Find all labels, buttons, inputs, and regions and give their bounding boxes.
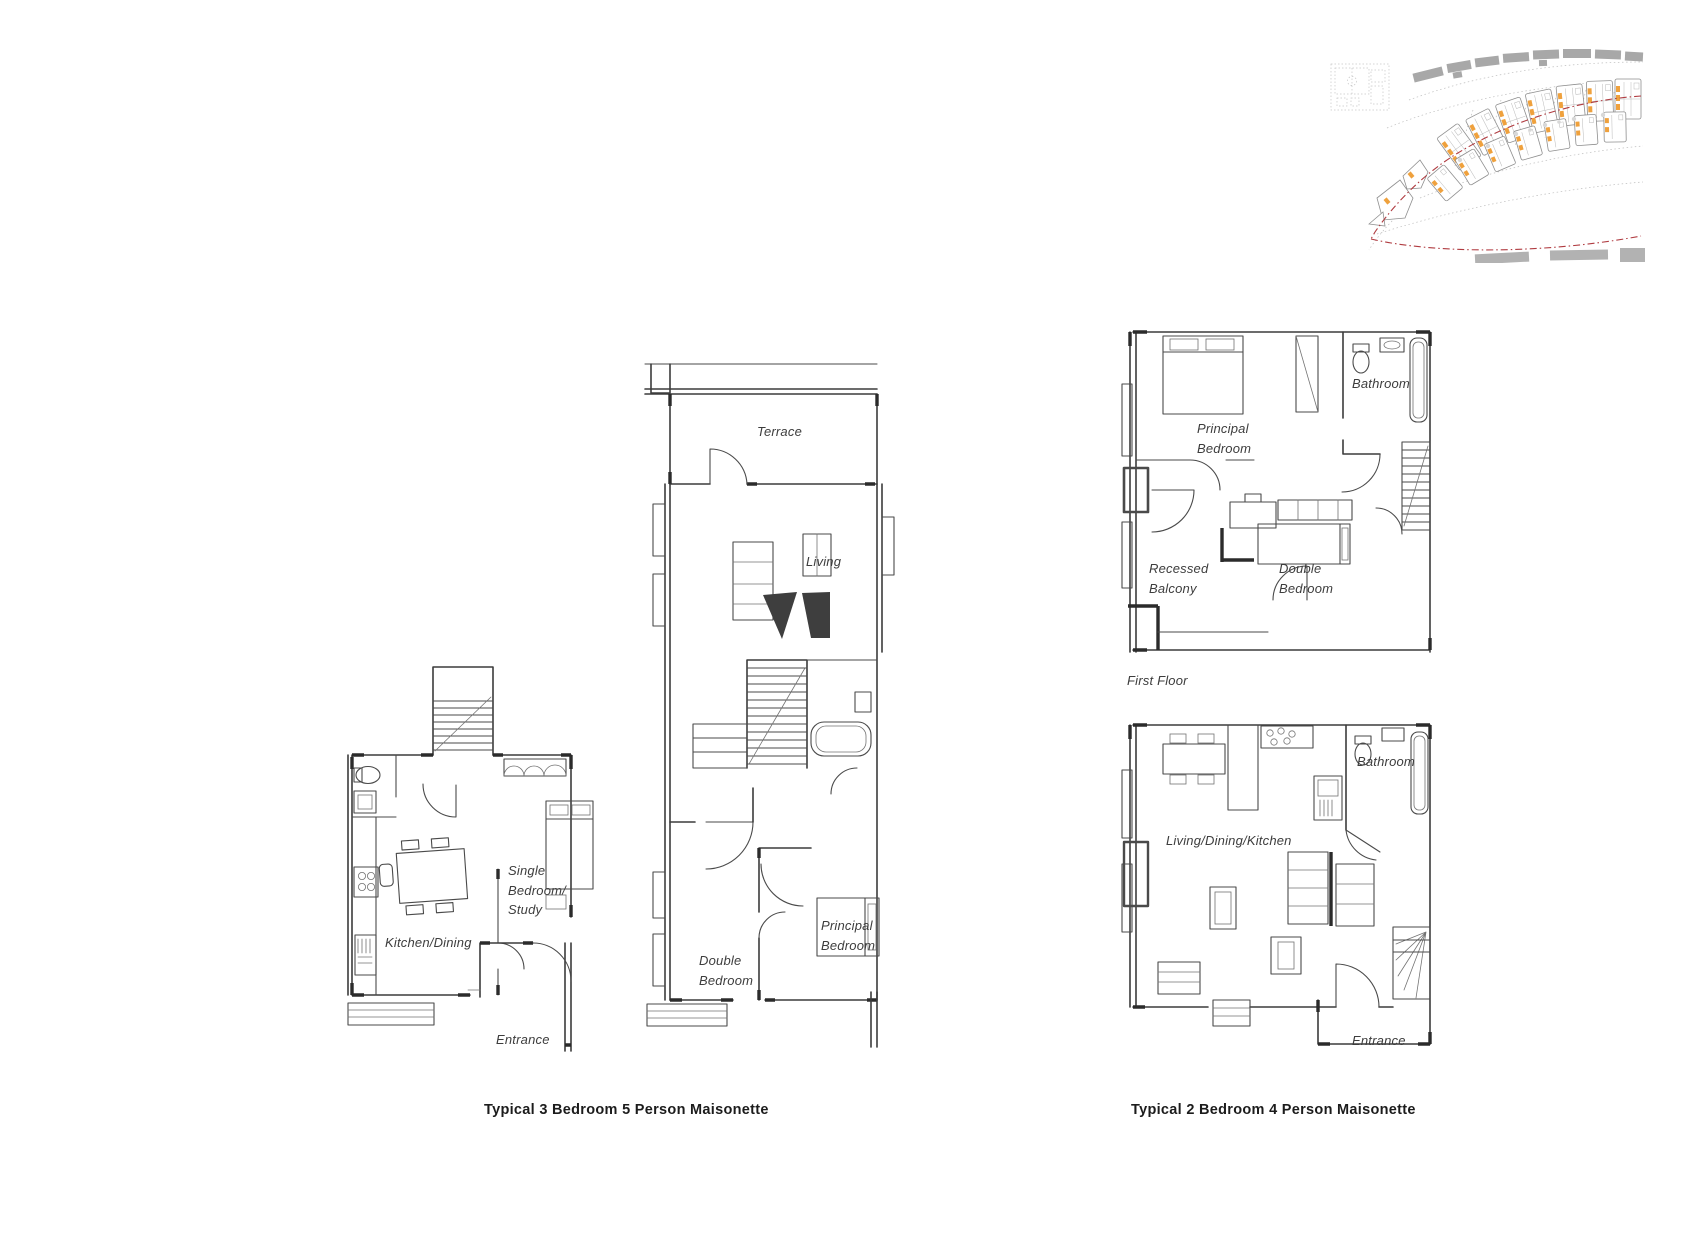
room-label-kitchen-dining: Kitchen/Dining (385, 933, 472, 953)
entrance-door-swing (1336, 964, 1379, 1007)
door-swing-bedroom (498, 943, 524, 969)
room-label-terrace: Terrace (757, 422, 802, 442)
bathtub (1410, 338, 1427, 422)
room-label-single-bedroom-study: Single Bedroom/ Study (508, 861, 566, 920)
dining-table (377, 837, 468, 917)
caption-3bed-maisonette: Typical 3 Bedroom 5 Person Maisonette (484, 1102, 769, 1118)
floor-label-first-floor: First Floor (1127, 671, 1188, 691)
stove (1261, 726, 1313, 748)
bathtub (811, 722, 871, 756)
room-label-entrance-3bed: Entrance (496, 1030, 550, 1050)
bedroom-partitions (759, 848, 811, 1000)
dining-table (1163, 734, 1225, 784)
room-label-bathroom-ground: Bathroom (1357, 752, 1415, 772)
windows (1122, 384, 1148, 588)
stair (693, 660, 807, 768)
room-label-living: Living (806, 552, 841, 572)
plan-3bed-lower-floor (318, 605, 598, 1055)
principal-bed (1163, 336, 1243, 414)
dresser (1222, 494, 1276, 562)
stair (433, 667, 493, 755)
hall-partition (1136, 460, 1254, 490)
sink (855, 692, 871, 712)
door-swing-stair (1376, 508, 1402, 534)
door-swing-hall (423, 784, 456, 817)
entrance-lobby (468, 943, 571, 997)
window-bay-below (647, 1004, 727, 1026)
masterplan-inset-map (1325, 48, 1645, 263)
bathroom (1342, 332, 1427, 492)
shelving-units (1288, 852, 1374, 926)
room-label-living-dining-kitchen: Living/Dining/Kitchen (1166, 831, 1292, 851)
toilet (356, 767, 380, 784)
room-label-principal-bedroom-3bed: Principal Bedroom (821, 916, 875, 955)
wc-room (352, 755, 396, 817)
door-swing-bathroom (1342, 454, 1380, 492)
room-label-double-bedroom-2bed: Double Bedroom (1279, 559, 1333, 598)
wardrobe (504, 759, 566, 776)
door-swing-bathroom (1346, 830, 1380, 860)
window-bays-bottom (1158, 937, 1301, 1026)
kitchen-units (1228, 725, 1342, 820)
hall-doors (670, 788, 803, 906)
wardrobe (1296, 336, 1318, 412)
window-bay-below (348, 1003, 434, 1025)
bathroom (1346, 725, 1428, 860)
room-label-bathroom-first: Bathroom (1352, 374, 1410, 394)
room-label-entrance-2bed: Entrance (1352, 1031, 1406, 1051)
rooflight-hatch (763, 592, 830, 639)
housing-blocks (1369, 79, 1641, 226)
toilet (1353, 351, 1369, 373)
architectural-drawing-sheet: Kitchen/Dining Single Bedroom/ Study Ent… (0, 0, 1700, 1235)
walls (1130, 725, 1430, 1044)
door-swing-bathroom (831, 768, 857, 794)
sports-courts (1331, 64, 1389, 110)
room-label-double-bedroom-3bed: Double Bedroom (699, 951, 753, 990)
double-bed (1258, 500, 1352, 564)
caption-2bed-maisonette: Typical 2 Bedroom 4 Person Maisonette (1131, 1102, 1416, 1118)
context-buildings (1412, 49, 1643, 82)
room-label-principal-bedroom-2bed: Principal Bedroom (1197, 419, 1251, 458)
bathtub (1411, 732, 1428, 814)
door-swing-principal (759, 912, 785, 938)
stair (1376, 442, 1430, 534)
sink (1380, 338, 1404, 352)
balcony-door-swing (1152, 490, 1194, 532)
stove (354, 867, 378, 897)
sink (354, 791, 376, 813)
windows (1122, 770, 1148, 932)
sink (1382, 728, 1404, 741)
stair (1393, 927, 1430, 999)
bathroom (807, 660, 877, 794)
side-table (1210, 887, 1236, 929)
cut-buildings-south (1475, 248, 1645, 263)
kitchen-units (354, 817, 378, 995)
terrace-door-swing (710, 449, 747, 484)
room-label-recessed-balcony: Recessed Balcony (1149, 559, 1208, 598)
